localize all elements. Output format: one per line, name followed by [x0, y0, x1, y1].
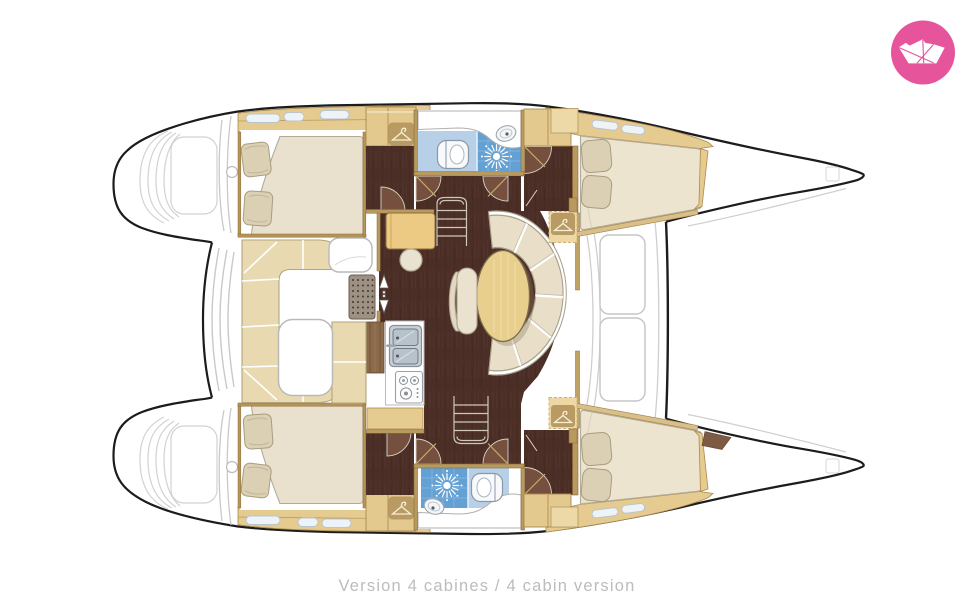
svg-text:Version 4 cabines / 4 cabin ve: Version 4 cabines / 4 cabin version [339, 577, 636, 595]
